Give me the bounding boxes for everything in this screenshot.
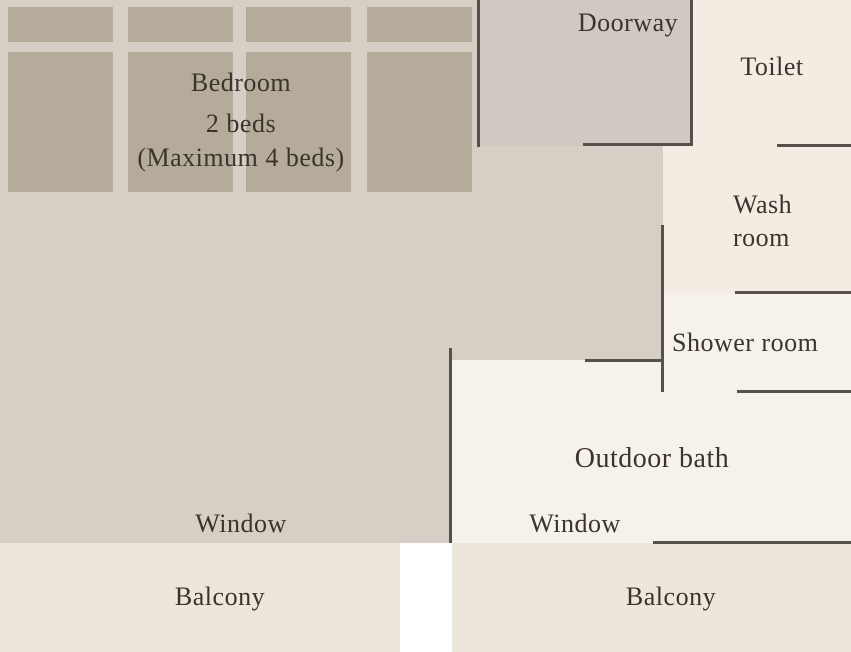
wall-toilet-bottom [777,144,851,147]
bed-mat [367,7,472,42]
wash-room-label: Wash room [733,188,843,254]
wall-doorway-bottom [583,143,693,146]
wall-washroom-bottom [735,291,851,294]
toilet-label: Toilet [652,52,851,82]
doorway-label: Doorway [508,8,748,38]
bed-mat [367,52,472,192]
balcony-right-label: Balcony [551,582,791,612]
bedroom-beds-label: 2 beds [121,109,361,139]
wash-room-label-line2: room [733,223,790,252]
window-left-label: Window [121,509,361,539]
bed-mat [8,7,113,42]
bed-mat [128,7,233,42]
bed-mat [8,52,113,192]
bedroom-max-beds-label: (Maximum 4 beds) [121,143,361,173]
window-right-label: Window [455,509,695,539]
wall-bath-top [585,359,663,362]
wall-washroom-left [661,225,664,392]
outdoor-bath-label: Outdoor bath [532,443,772,475]
wall-bath-left [449,348,452,543]
wall-bedroom-right [477,0,480,147]
bed-mat [246,7,351,42]
balcony-left-label: Balcony [100,582,340,612]
wash-room-label-line1: Wash [733,190,792,219]
wall-bath-bottom [653,541,851,544]
wall-shower-bottom [737,390,851,393]
bedroom-label: Bedroom [121,68,361,98]
shower-room-label: Shower room [672,328,818,358]
floor-plan: Doorway Toilet Bedroom 2 beds (Maximum 4… [0,0,851,652]
